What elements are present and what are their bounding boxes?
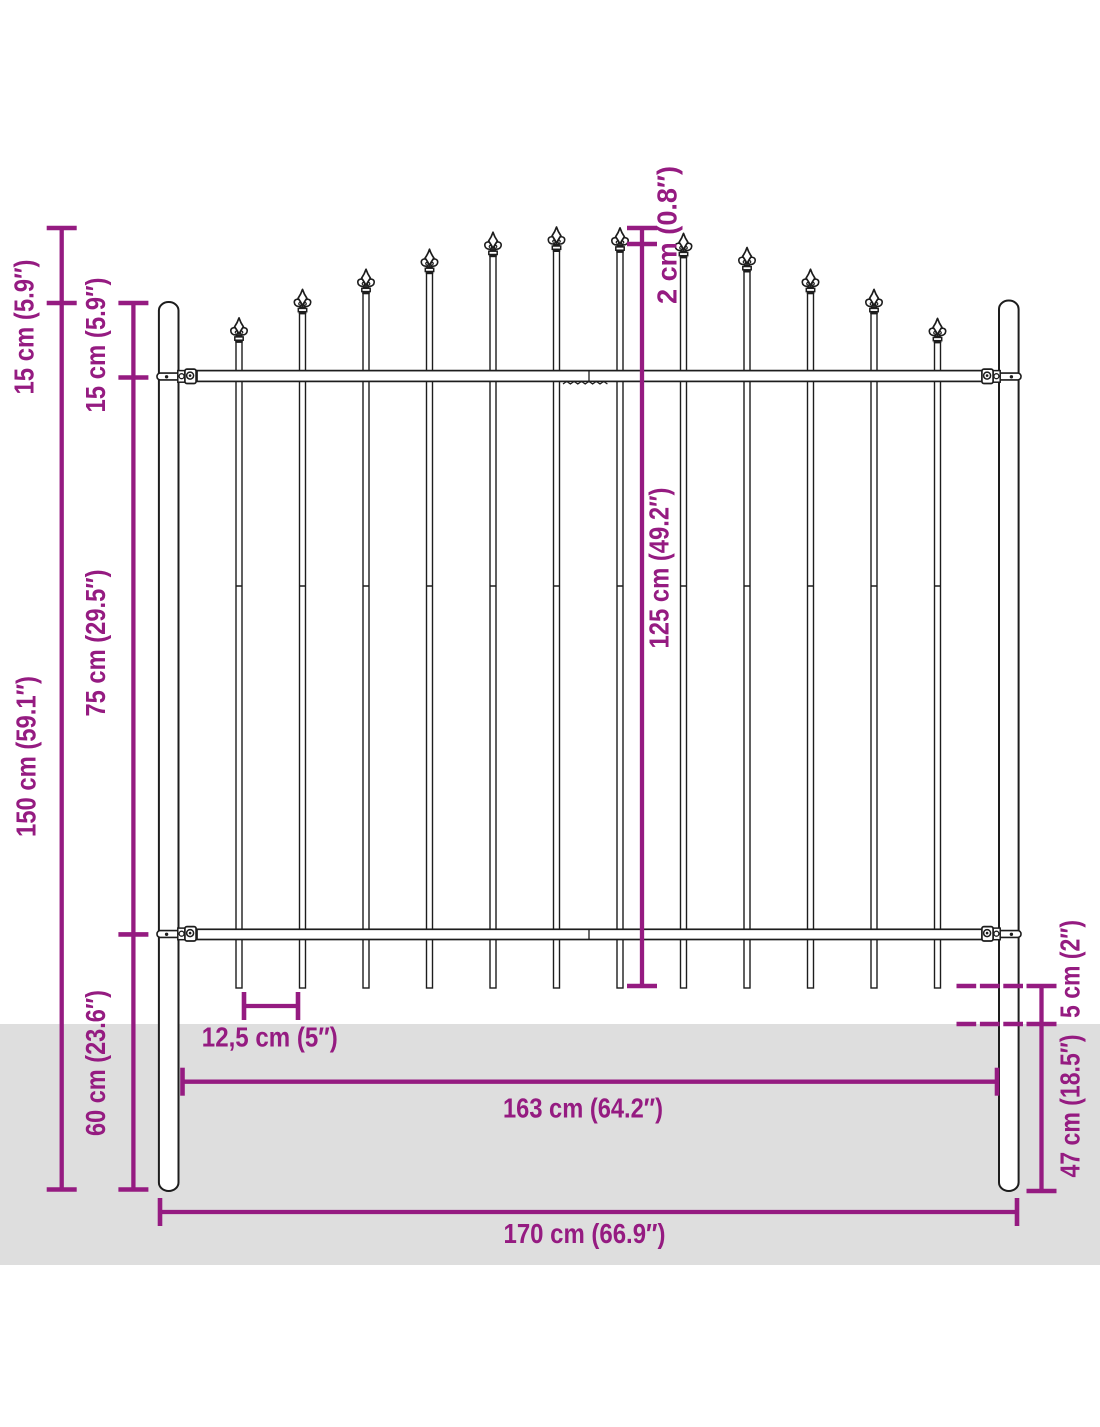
svg-text:163 cm (64.2″): 163 cm (64.2″)	[503, 1093, 663, 1124]
svg-text:170 cm (66.9″): 170 cm (66.9″)	[504, 1218, 666, 1249]
svg-text:75 cm (29.5″): 75 cm (29.5″)	[80, 570, 111, 717]
svg-text:125 cm (49.2″): 125 cm (49.2″)	[644, 488, 675, 649]
svg-text:150 cm (59.1″): 150 cm (59.1″)	[11, 676, 42, 837]
svg-text:47 cm (18.5″): 47 cm (18.5″)	[1054, 1035, 1085, 1178]
svg-text:2 cm (0.8″): 2 cm (0.8″)	[652, 166, 683, 304]
svg-text:15 cm (5.9″): 15 cm (5.9″)	[9, 260, 40, 395]
svg-text:60 cm (23.6″): 60 cm (23.6″)	[80, 990, 111, 1136]
svg-text:5 cm (2″): 5 cm (2″)	[1054, 920, 1085, 1018]
svg-text:12,5 cm (5″): 12,5 cm (5″)	[202, 1022, 338, 1053]
svg-text:15 cm (5.9″): 15 cm (5.9″)	[80, 278, 111, 413]
